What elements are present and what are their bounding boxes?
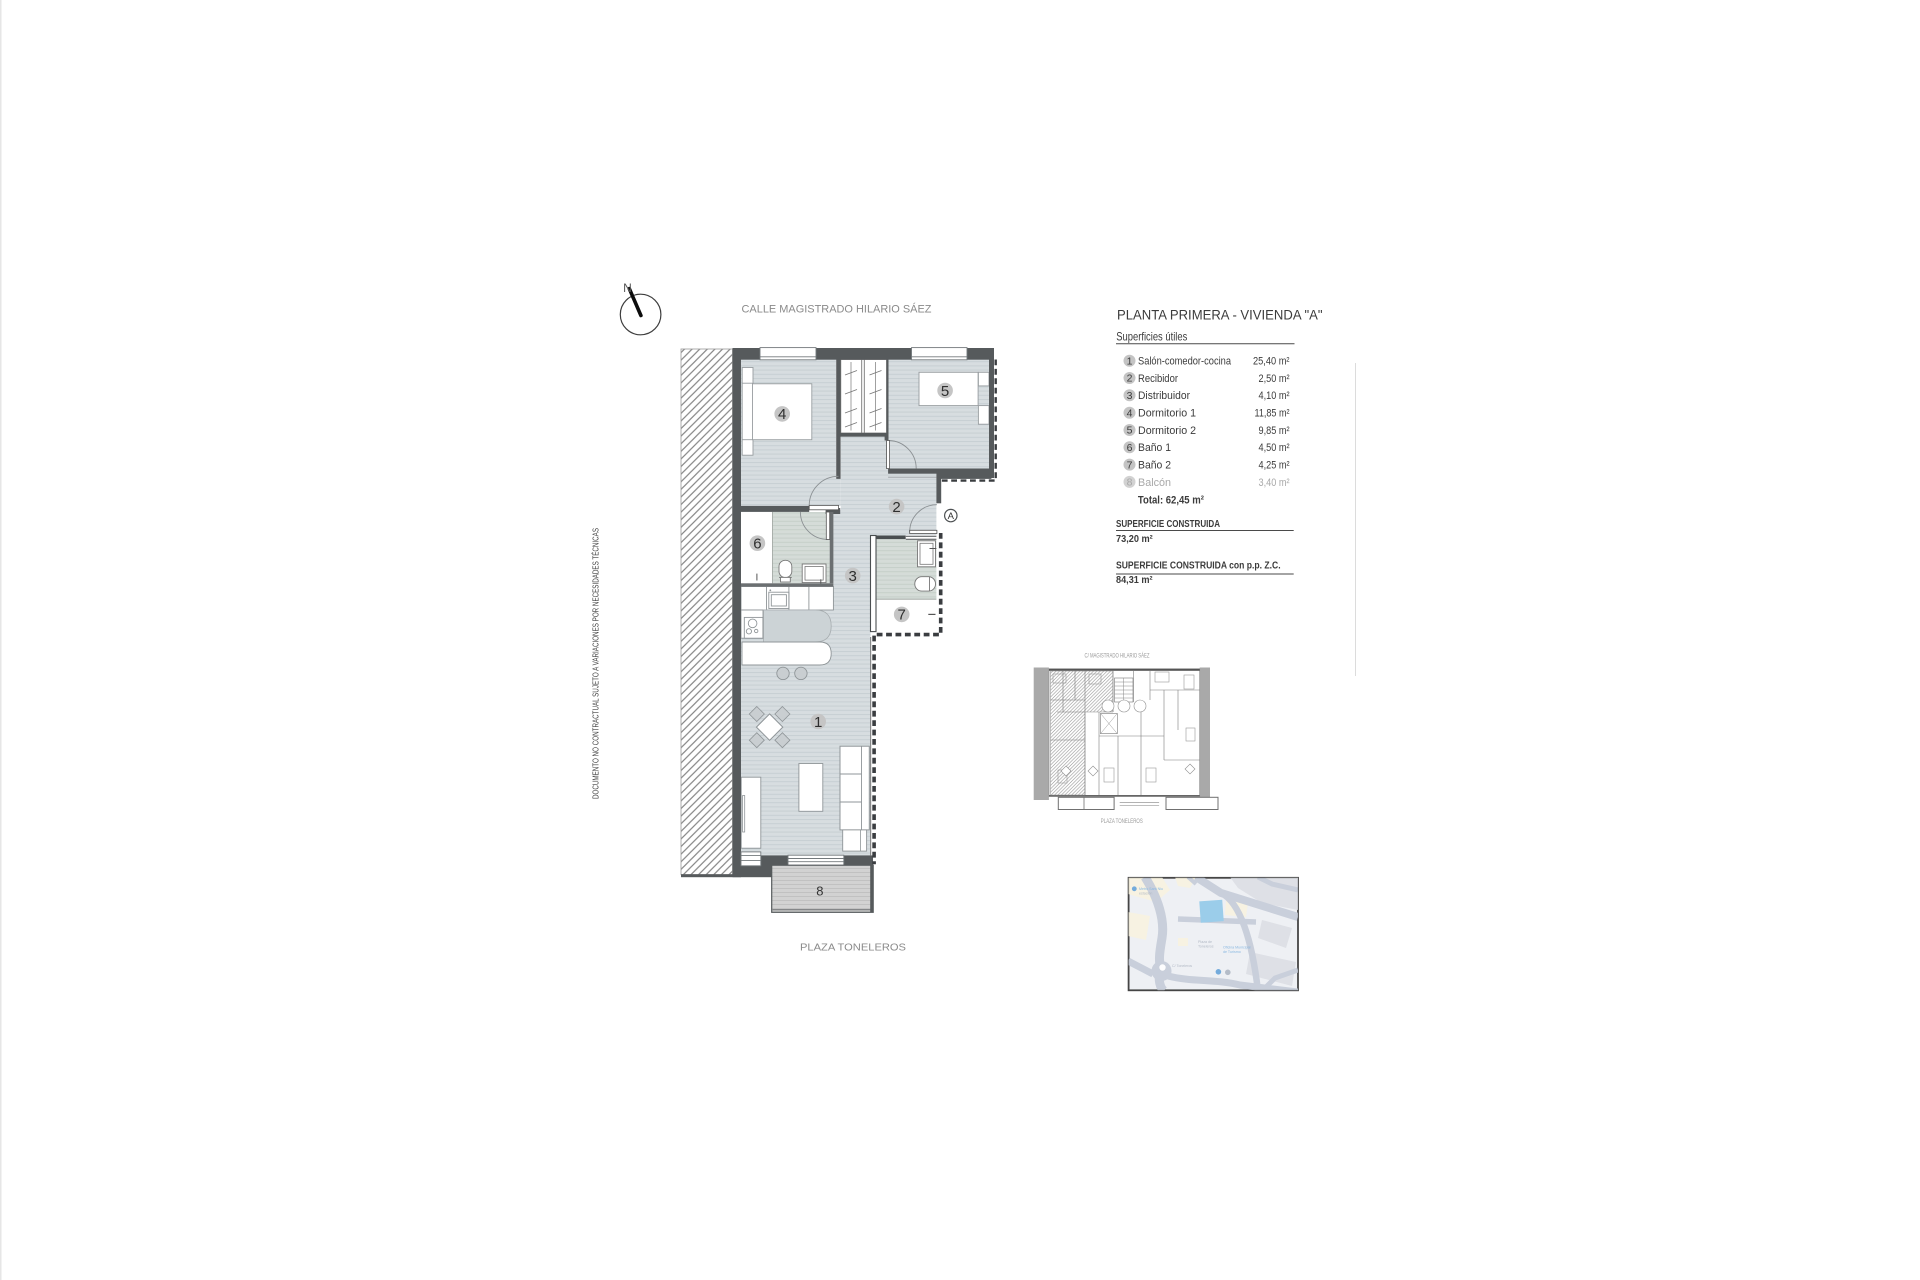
- svg-text:4,50 m²: 4,50 m²: [1259, 442, 1290, 454]
- svg-text:4: 4: [778, 406, 786, 423]
- svg-text:4: 4: [1127, 407, 1133, 419]
- svg-text:84,31 m²: 84,31 m²: [1116, 574, 1153, 586]
- svg-text:Baño 2: Baño 2: [1138, 460, 1171, 472]
- svg-text:11,85 m²: 11,85 m²: [1255, 408, 1290, 420]
- svg-text:3,40 m²: 3,40 m²: [1259, 477, 1290, 489]
- svg-text:Toneleros: Toneleros: [1198, 945, 1214, 949]
- svg-text:PLANTA PRIMERA - VIVIENDA "A": PLANTA PRIMERA - VIVIENDA "A": [1117, 307, 1323, 323]
- svg-text:Dormitorio 1: Dormitorio 1: [1138, 408, 1196, 420]
- svg-text:4,10 m²: 4,10 m²: [1259, 390, 1290, 402]
- svg-text:1: 1: [1127, 355, 1133, 367]
- svg-text:PLAZA TONELEROS: PLAZA TONELEROS: [1101, 819, 1143, 825]
- svg-text:8: 8: [816, 884, 823, 899]
- svg-text:Metro Sant Niu: Metro Sant Niu: [1139, 887, 1163, 891]
- svg-text:Salón-comedor-cocina: Salón-comedor-cocina: [1138, 356, 1232, 368]
- svg-text:estación: estación: [1139, 892, 1152, 896]
- svg-text:Dormitorio 2: Dormitorio 2: [1138, 425, 1196, 437]
- svg-text:1: 1: [814, 714, 822, 731]
- svg-text:6: 6: [1127, 442, 1133, 454]
- svg-text:7: 7: [898, 607, 906, 624]
- svg-text:N: N: [623, 281, 632, 295]
- svg-text:6: 6: [753, 536, 761, 553]
- svg-text:Distribuidor: Distribuidor: [1138, 390, 1190, 402]
- svg-text:25,40 m²: 25,40 m²: [1253, 356, 1290, 368]
- svg-text:3: 3: [1127, 390, 1133, 402]
- svg-text:9,85 m²: 9,85 m²: [1259, 425, 1290, 437]
- svg-text:Recibidor: Recibidor: [1138, 373, 1178, 385]
- svg-text:A: A: [948, 511, 955, 522]
- svg-text:C/ MAGISTRADO HILARIO SÁEZ: C/ MAGISTRADO HILARIO SÁEZ: [1085, 653, 1150, 660]
- svg-text:DOCUMENTO NO CONTRACTUAL SUJET: DOCUMENTO NO CONTRACTUAL SUJETO A VARIAC…: [592, 528, 601, 799]
- svg-text:Baño 1: Baño 1: [1138, 442, 1171, 454]
- svg-text:8: 8: [1127, 477, 1133, 489]
- svg-text:SUPERFICIE CONSTRUIDA: SUPERFICIE CONSTRUIDA: [1116, 518, 1220, 530]
- svg-text:CALLE MAGISTRADO HILARIO SÁEZ: CALLE MAGISTRADO HILARIO SÁEZ: [742, 303, 932, 316]
- svg-text:2: 2: [1127, 373, 1133, 385]
- svg-text:73,20 m²: 73,20 m²: [1116, 533, 1153, 545]
- svg-text:2,50 m²: 2,50 m²: [1259, 373, 1290, 385]
- svg-text:Total: 62,45 m²: Total: 62,45 m²: [1138, 495, 1204, 507]
- svg-text:SUPERFICIE CONSTRUIDA con p.p: SUPERFICIE CONSTRUIDA con p.p. Z.C.: [1116, 560, 1281, 572]
- svg-text:2: 2: [892, 499, 900, 516]
- svg-text:C/ Toneleros: C/ Toneleros: [1172, 964, 1192, 968]
- svg-text:PLAZA TONELEROS: PLAZA TONELEROS: [800, 942, 906, 954]
- svg-text:4,25 m²: 4,25 m²: [1259, 460, 1290, 472]
- svg-text:5: 5: [941, 383, 949, 400]
- svg-text:Plaza de: Plaza de: [1198, 940, 1212, 944]
- svg-text:Balcón: Balcón: [1138, 477, 1171, 489]
- svg-text:7: 7: [1127, 459, 1133, 471]
- svg-text:3: 3: [849, 568, 857, 585]
- svg-text:Superficies útiles: Superficies útiles: [1116, 330, 1187, 344]
- svg-text:Oficina Municipal: Oficina Municipal: [1223, 946, 1251, 950]
- svg-text:5: 5: [1127, 425, 1133, 437]
- svg-text:de Turismo: de Turismo: [1223, 950, 1241, 954]
